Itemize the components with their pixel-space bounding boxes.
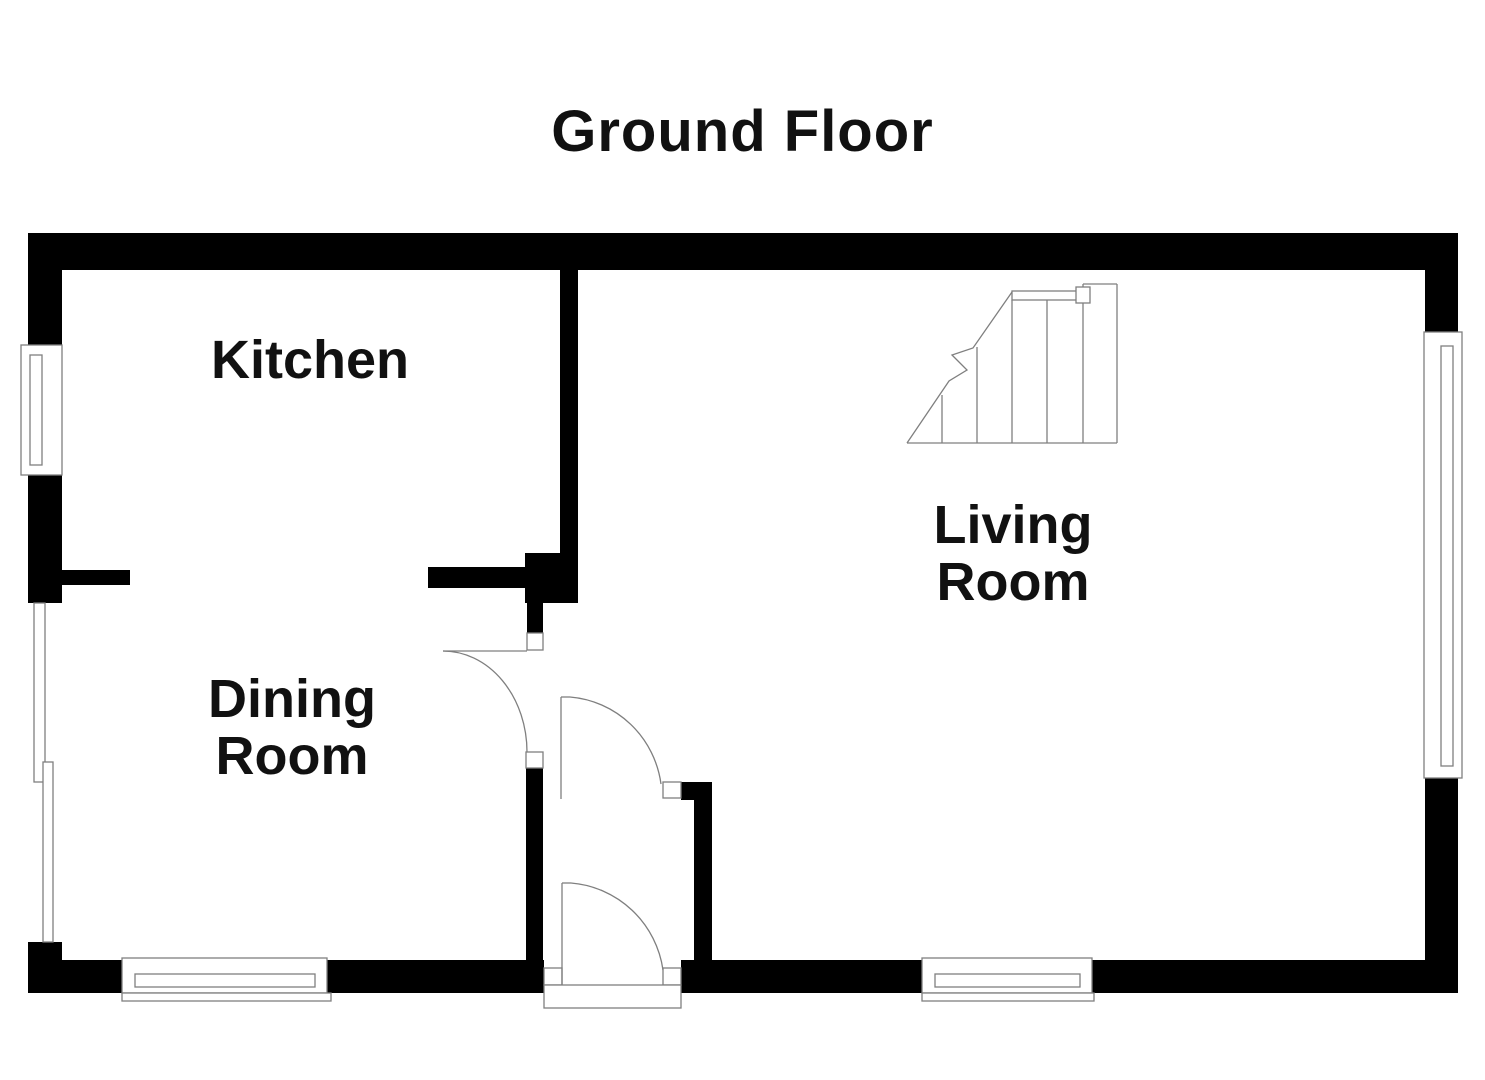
living-bottom-window-sill <box>922 993 1094 1001</box>
wall-kitchen-dining-stub-left <box>62 570 130 585</box>
wall-divider-tail <box>527 603 543 633</box>
room-label-text: Kitchen <box>211 330 409 390</box>
jamb-front-door-left <box>544 968 562 985</box>
wall-left-mid <box>28 475 62 603</box>
dining-left-window-lower <box>43 762 53 942</box>
stair-break-line <box>907 292 1012 443</box>
room-label-text-line1: Dining <box>92 671 492 728</box>
dining-bottom-window <box>122 958 327 993</box>
floorplan-page: Ground Floor <box>0 0 1485 1080</box>
jamb-hall-door <box>663 782 681 798</box>
wall-hall-right-nub <box>681 782 712 800</box>
room-label-text-line1: Living <box>813 497 1213 554</box>
door-swing-arc <box>570 697 661 784</box>
wall-bottom-c <box>681 960 922 993</box>
wall-left-bottom-corner <box>28 942 62 993</box>
wall-right-upper <box>1425 270 1458 332</box>
wall-right-lower <box>1425 778 1458 993</box>
wall-hall-right <box>694 800 712 960</box>
room-label-text-line2: Room <box>813 554 1213 611</box>
jamb-dining-door-top <box>527 633 543 650</box>
staircase <box>907 284 1117 443</box>
door-swing-arc <box>571 883 663 970</box>
wall-hall-left <box>526 768 543 960</box>
wall-bottom-b <box>327 960 544 993</box>
jamb-front-door-right <box>663 968 681 985</box>
wall-kitchen-living-divider <box>560 270 578 553</box>
wall-bottom-d <box>1092 960 1458 993</box>
wall-kitchen-dining-stub-right <box>428 567 525 588</box>
living-bottom-window <box>922 958 1092 993</box>
dining-bottom-window-sill <box>122 993 331 1001</box>
door-jambs <box>526 633 681 1008</box>
wall-top <box>28 233 1458 270</box>
stair-top-tread <box>1012 291 1077 300</box>
wall-divider-chunk <box>525 553 578 603</box>
windows <box>21 332 1462 1001</box>
stair-newel-post <box>1076 287 1090 303</box>
wall-left-upper <box>28 270 62 345</box>
dining-left-window-upper <box>34 603 45 782</box>
room-label-kitchen: Kitchen <box>110 332 510 389</box>
hall-living-room-door <box>561 697 661 799</box>
floorplan-drawing <box>0 0 1485 1080</box>
wall-bottom-a <box>62 960 122 993</box>
living-right-window <box>1424 332 1462 778</box>
front-door-threshold <box>544 985 681 1008</box>
jamb-dining-door-bottom <box>526 752 543 768</box>
front-entrance-door <box>562 883 663 985</box>
room-label-living-room: Living Room <box>813 497 1213 611</box>
room-label-dining-room: Dining Room <box>92 671 492 785</box>
room-label-text-line2: Room <box>92 728 492 785</box>
